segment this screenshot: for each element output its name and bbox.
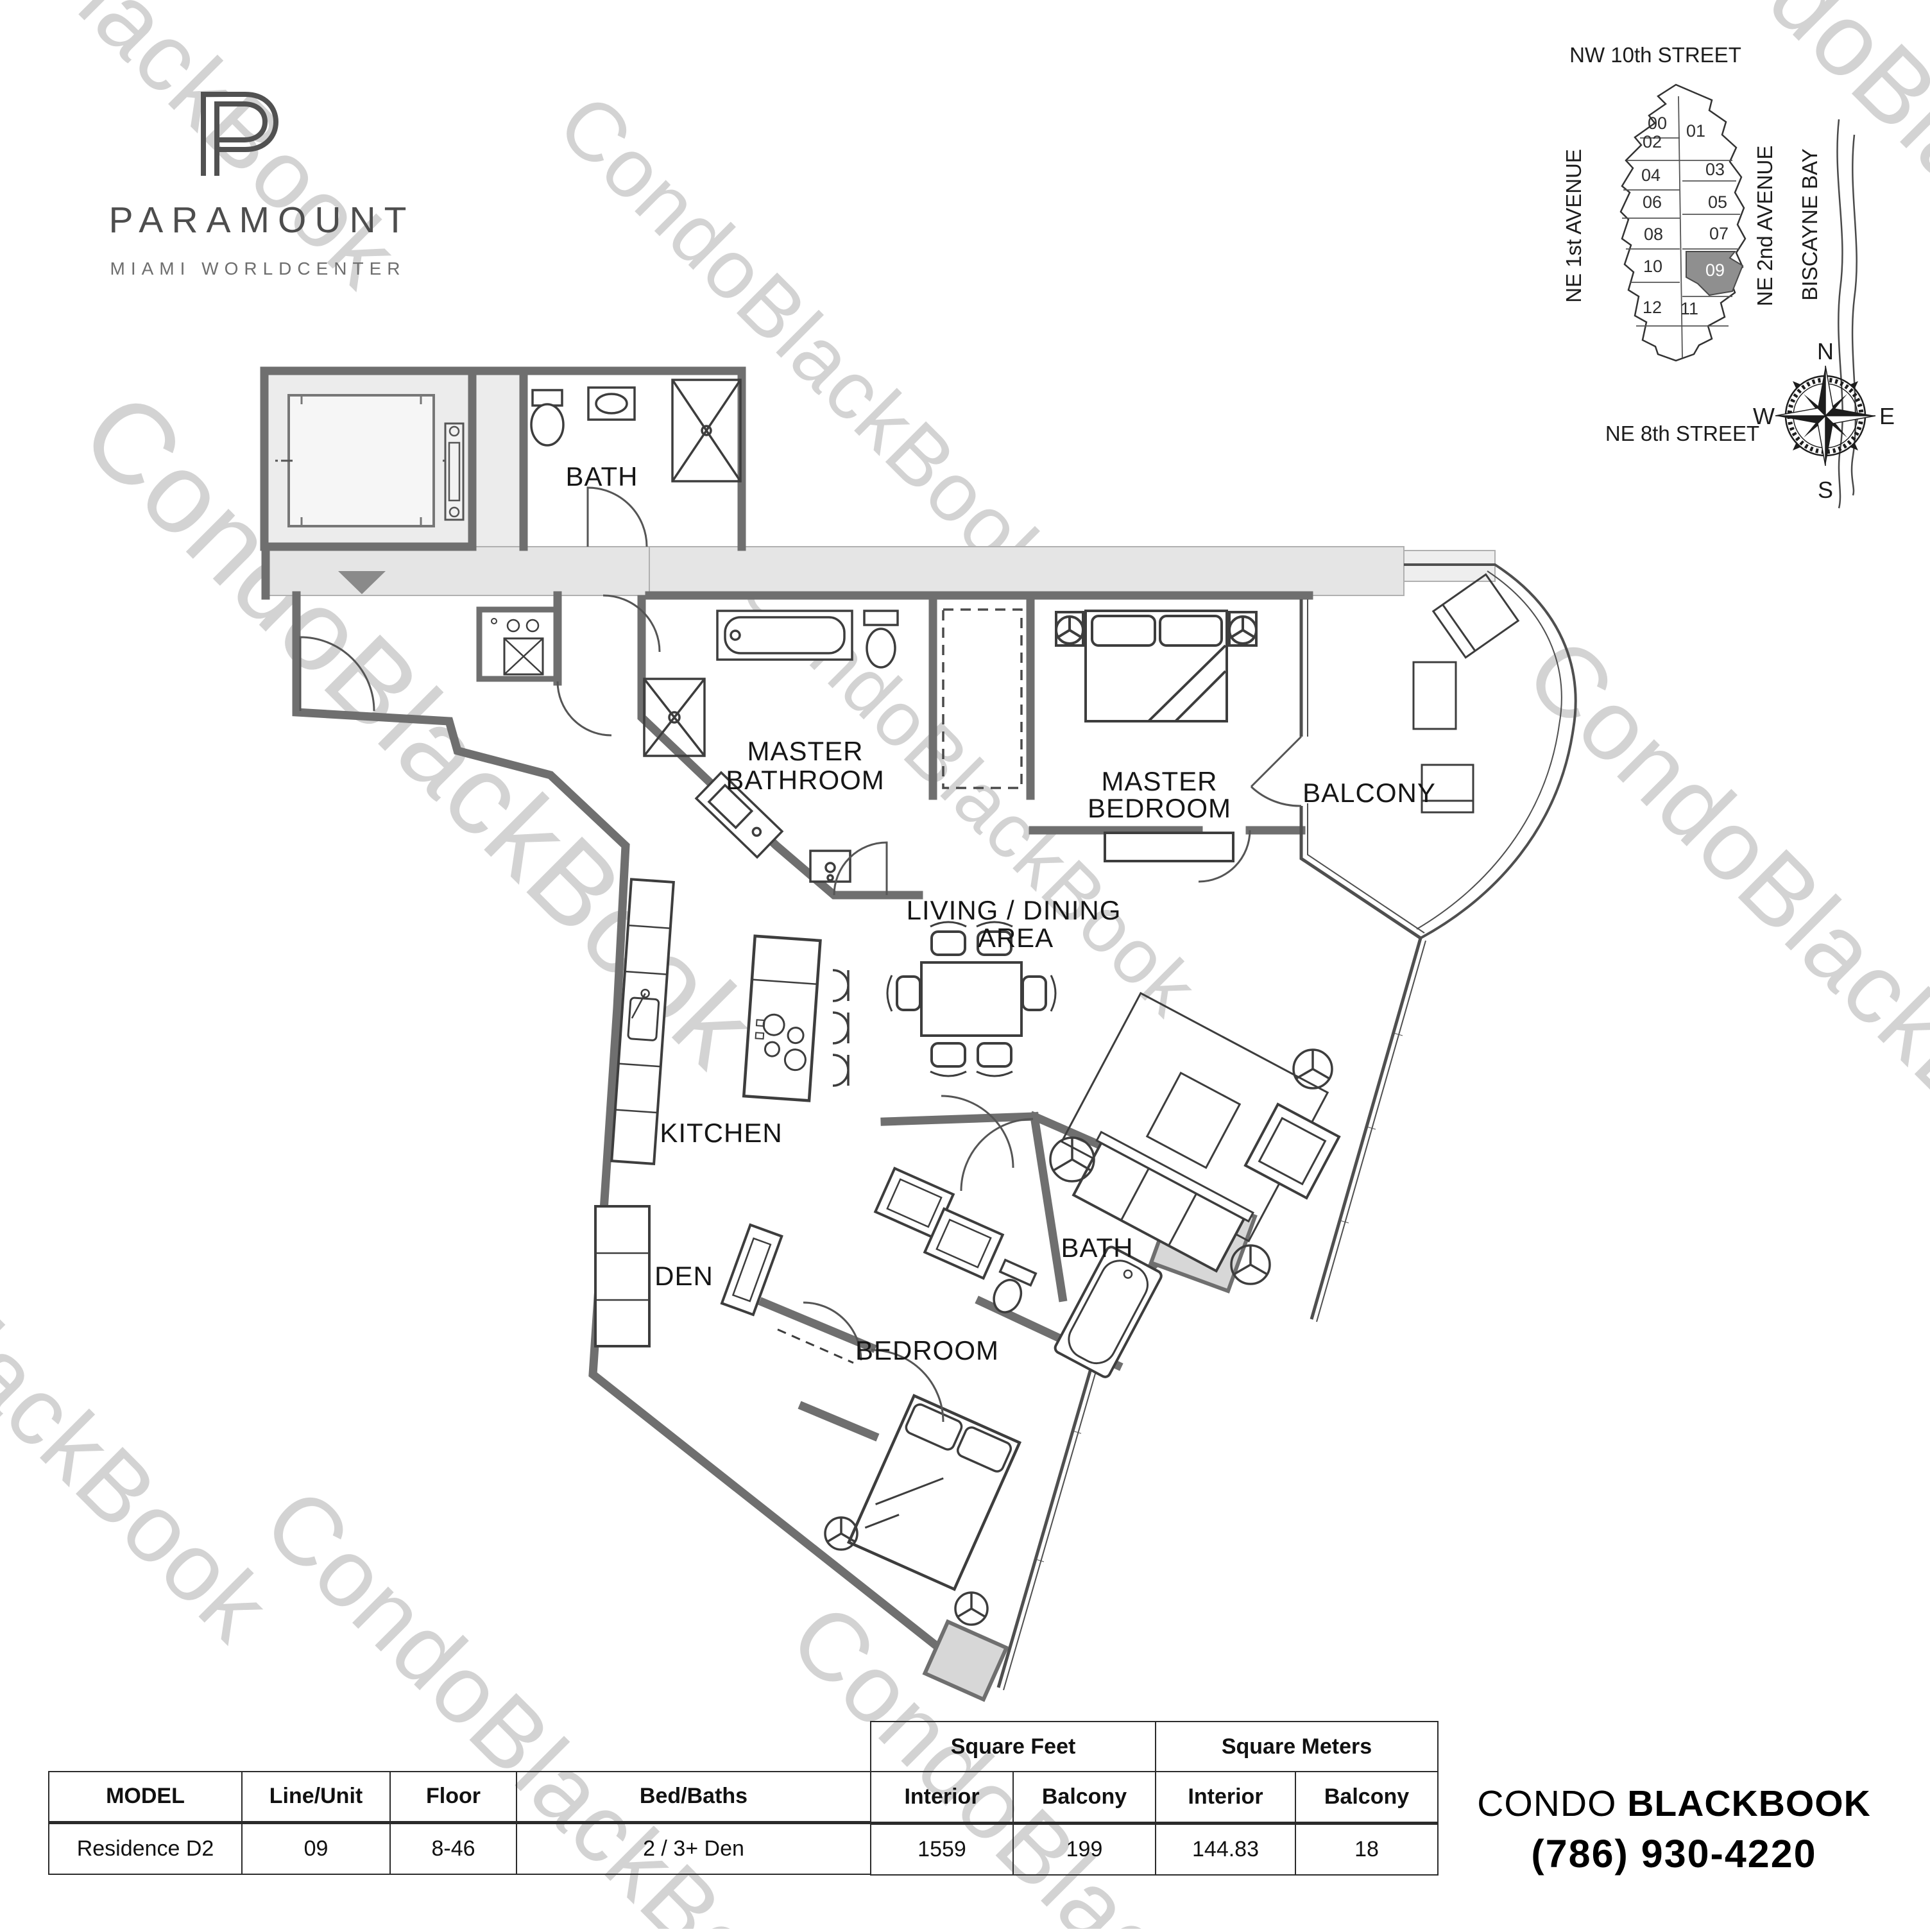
unit-label-10: 10 xyxy=(1643,257,1662,276)
balcony-railing xyxy=(1404,565,1576,938)
unit-label-03: 03 xyxy=(1705,160,1725,179)
watermark-text: CondoBlackBook xyxy=(1505,617,1930,1247)
col-header-sqft-balcony: Balcony xyxy=(1013,1772,1156,1823)
watermark-text: CondoBlackBook xyxy=(541,76,1072,608)
unit-label-02: 02 xyxy=(1643,132,1662,151)
col-header-sqft-interior: Interior xyxy=(871,1772,1013,1823)
room-label-bath-upper: BATH xyxy=(566,461,638,492)
logo-tagline: MIAMI WORLDCENTER xyxy=(110,259,406,278)
brand-phone: (786) 930-4220 xyxy=(1453,1831,1895,1876)
compass-w: W xyxy=(1753,403,1775,429)
floorplan-sheet: CondoBlackBook CondoBlackBook CondoBlack… xyxy=(0,0,1930,1929)
room-label-master-bathroom: MASTER xyxy=(747,736,863,766)
brand-name: CONDO BLACKBOOK xyxy=(1453,1782,1895,1825)
unit-label-07: 07 xyxy=(1709,224,1729,243)
compass-s: S xyxy=(1818,477,1833,503)
room-label-master-bedroom: BEDROOM xyxy=(1088,793,1231,823)
cell-line-unit: 09 xyxy=(242,1822,390,1874)
master-bedroom-furniture xyxy=(1056,611,1256,861)
unit-label-04: 04 xyxy=(1641,166,1661,185)
cell-floor: 8-46 xyxy=(390,1822,517,1874)
room-label-bath-lower: BATH xyxy=(1061,1233,1134,1263)
footer-brand: CONDO BLACKBOOK (786) 930-4220 xyxy=(1453,1782,1895,1876)
cell-sqft-interior: 1559 xyxy=(871,1823,1013,1875)
room-label-balcony: BALCONY xyxy=(1302,778,1436,808)
watermark-text: CondoBlackBook xyxy=(0,1050,291,1661)
unit-label-01: 01 xyxy=(1686,121,1705,141)
building-keyplate: 00 01 02 03 04 05 06 07 08 09 10 11 12 xyxy=(1621,85,1745,361)
col-header-model: MODEL xyxy=(49,1772,242,1822)
brand-word-condo: CONDO xyxy=(1477,1783,1616,1824)
avenue-right-label: NE 2nd AVENUE xyxy=(1753,146,1777,307)
col-header-sqm-interior: Interior xyxy=(1156,1772,1295,1823)
spec-table-right: Square Feet Square Meters Interior Balco… xyxy=(870,1721,1439,1876)
compass-e: E xyxy=(1879,403,1895,429)
room-label-den: DEN xyxy=(654,1261,713,1291)
col-header-line-unit: Line/Unit xyxy=(242,1772,390,1822)
cell-bed-baths: 2 / 3+ Den xyxy=(517,1822,871,1874)
unit-label-00: 00 xyxy=(1648,114,1667,133)
floor-plan: BATH MASTER BATHROOM MASTER BEDROOM BALC… xyxy=(264,371,1576,1700)
unit-label-06: 06 xyxy=(1643,192,1662,212)
room-label-kitchen: KITCHEN xyxy=(660,1118,782,1148)
group-header-square-meters: Square Meters xyxy=(1156,1722,1438,1772)
room-label-bedroom: BEDROOM xyxy=(855,1335,999,1365)
avenue-left-label: NE 1st AVENUE xyxy=(1562,149,1585,303)
unit-label-11: 11 xyxy=(1680,299,1698,318)
cell-sqm-balcony: 18 xyxy=(1295,1823,1438,1875)
room-label-living-dining: AREA xyxy=(978,923,1054,953)
street-bottom-label: NE 8th STREET xyxy=(1605,422,1759,445)
plan-canvas: CondoBlackBook CondoBlackBook CondoBlack… xyxy=(0,0,1930,1929)
col-header-floor: Floor xyxy=(390,1772,517,1822)
col-header-bed-baths: Bed/Baths xyxy=(517,1772,871,1822)
unit-label-08: 08 xyxy=(1644,225,1663,244)
spec-table-left: MODEL Line/Unit Floor Bed/Baths Residenc… xyxy=(48,1771,871,1875)
logo-name: PARAMOUNT xyxy=(109,200,415,241)
cell-sqm-interior: 144.83 xyxy=(1156,1823,1295,1875)
utility-closet xyxy=(479,610,559,679)
cell-model: Residence D2 xyxy=(49,1822,242,1874)
col-header-sqm-balcony: Balcony xyxy=(1295,1772,1438,1823)
bedroom-furniture xyxy=(778,1329,1020,1625)
balcony-furniture xyxy=(1413,574,1518,812)
brand-word-blackbook: BLACKBOOK xyxy=(1627,1783,1870,1824)
group-header-square-feet: Square Feet xyxy=(871,1722,1156,1772)
compass-n: N xyxy=(1817,338,1834,364)
unit-label-12: 12 xyxy=(1643,298,1662,317)
cell-sqft-balcony: 199 xyxy=(1013,1823,1156,1875)
unit-label-05: 05 xyxy=(1708,192,1727,212)
street-top-label: NW 10th STREET xyxy=(1569,43,1741,67)
room-label-master-bathroom: BATHROOM xyxy=(726,765,885,795)
compass-rose-icon: N E S W xyxy=(1753,338,1895,503)
unit-label-09: 09 xyxy=(1705,261,1725,280)
room-label-living-dining: LIVING / DINING xyxy=(907,895,1122,925)
bay-label: BISCAYNE BAY xyxy=(1798,148,1822,300)
room-label-master-bedroom: MASTER xyxy=(1101,766,1217,796)
